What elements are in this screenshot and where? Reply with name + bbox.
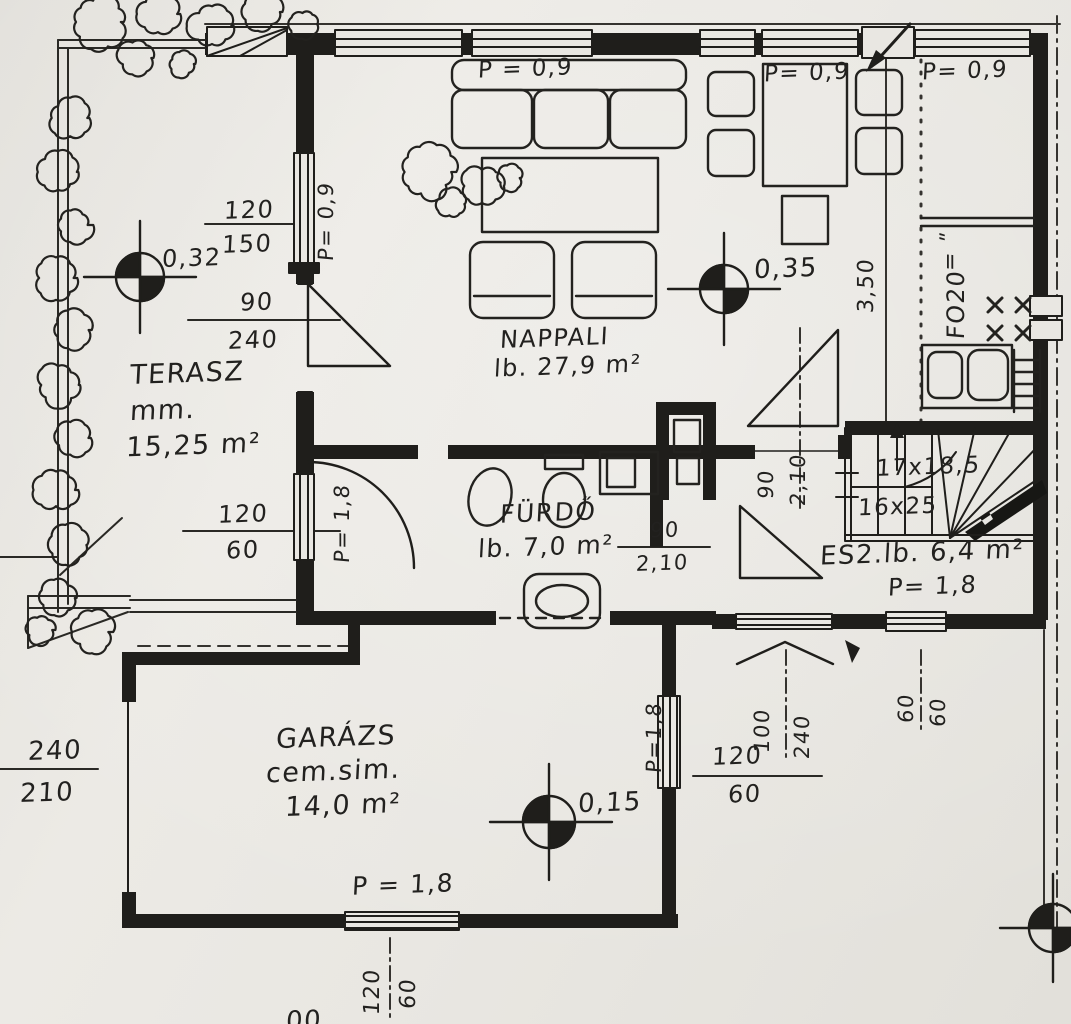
room-label-furdo-area: lb. 7,0 m² xyxy=(477,532,614,562)
dim-bath-door-h: 2,10 xyxy=(635,552,689,575)
dim-garage-bottom-window-w: 120 xyxy=(362,968,384,1016)
dim-bath-door-w: 90 xyxy=(649,519,680,541)
dim-garage-door-w: 240 xyxy=(27,737,82,765)
parapet-label-sofa-window: P = 0,9 xyxy=(477,56,573,82)
parapet-label-bath-window: P= 1,8 xyxy=(332,483,353,564)
room-label-garazs-sub: cem.sim. xyxy=(265,756,401,788)
note-fo20: FO20 xyxy=(944,269,968,340)
parapet-label-garage: P = 1,8 xyxy=(351,870,454,899)
floor-plan-scan: P = 0,9 P= 0,9 P= 0,9 P= 0,9 P= 1,8 P=1,… xyxy=(0,0,1071,1024)
room-label-terasz-area: 15,25 m² xyxy=(125,430,261,462)
dim-garage-right-window-h: 60 xyxy=(727,781,762,806)
parapet-label-garage-right-window: P=1,8 xyxy=(644,701,665,774)
dim-bath-window-w: 120 xyxy=(217,501,269,527)
stair-label-upper-flight: 17x18,5 xyxy=(875,454,981,481)
dim-garage-bottom-window-h: 60 xyxy=(398,977,420,1010)
dim-terrace-door-w: 90 xyxy=(239,289,274,314)
room-label-terasz-sub: mm. xyxy=(129,396,196,425)
level-value-terrace: 0,32 xyxy=(161,245,222,271)
parapet-label-kitchen-window: P= 0,9 xyxy=(921,58,1008,84)
plan-labels: P = 0,9 P= 0,9 P= 0,9 P= 0,9 P= 1,8 P=1,… xyxy=(0,0,1071,1024)
dim-terrace-door-h: 240 xyxy=(227,327,279,353)
room-label-nappali: NAPPALI xyxy=(499,324,609,352)
parapet-label-dining-window: P= 0,9 xyxy=(763,60,850,86)
stair-label-lower-flight: 16x25 xyxy=(857,495,938,521)
level-value-garage: 0,15 xyxy=(577,789,642,817)
note-fo20-marks: = ʺ xyxy=(940,230,962,272)
room-label-nappali-area: lb. 27,9 m² xyxy=(493,351,642,380)
room-label-stairhall-parapet: P= 1,8 xyxy=(887,572,978,599)
dim-hall-door-w: 90 xyxy=(756,468,777,500)
room-label-terasz: TERASZ xyxy=(129,358,245,389)
dim-terrace-window-h: 150 xyxy=(221,231,273,257)
dim-garage-door-h: 210 xyxy=(19,779,74,807)
dim-hall-window-h: 60 xyxy=(928,696,949,728)
parapet-label-terrace-door-wall: P= 0,9 xyxy=(316,181,337,262)
bottom-cut-text: 00 xyxy=(285,1007,322,1024)
room-label-stairhall: ES2.lb. 6,4 m² xyxy=(819,536,1025,569)
dim-garage-right-window-w: 120 xyxy=(711,743,763,769)
dim-storey-height: 3,50 xyxy=(856,257,878,314)
dim-bath-window-h: 60 xyxy=(225,537,260,562)
level-value-living: 0,35 xyxy=(753,255,818,283)
dim-entry-door-h: 240 xyxy=(792,713,813,759)
room-label-furdo: FÜRDŐ xyxy=(499,498,597,526)
dim-terrace-window-w: 120 xyxy=(223,197,275,223)
dim-hall-window-w: 60 xyxy=(896,692,917,724)
room-label-garazs-area: 14,0 m² xyxy=(284,790,402,821)
room-label-garazs: GARÁZS xyxy=(275,722,397,753)
dim-hall-door-h: 2,10 xyxy=(788,452,809,507)
